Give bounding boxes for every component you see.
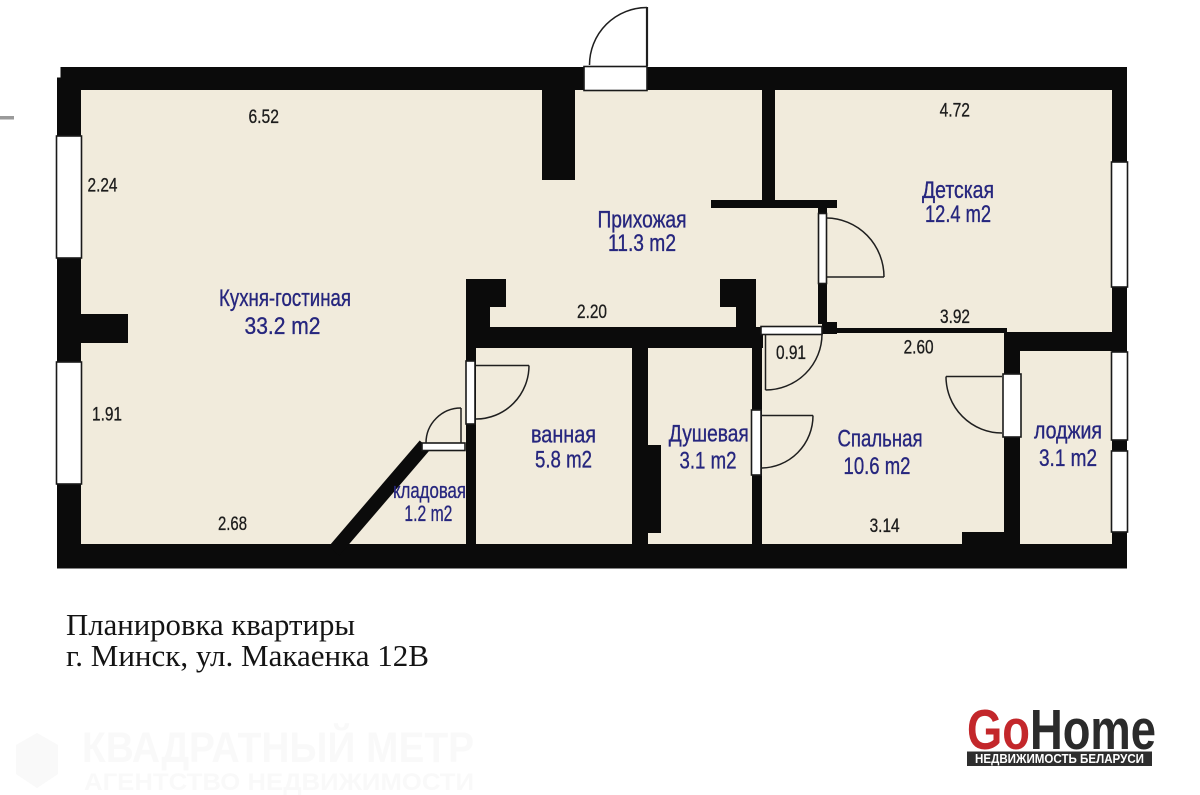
svg-text:НЕДВИЖИМОСТЬ БЕЛАРУСИ: НЕДВИЖИМОСТЬ БЕЛАРУСИ — [975, 752, 1144, 766]
svg-text:Кухня-гостиная: Кухня-гостиная — [219, 285, 351, 312]
svg-text:ванная: ванная — [531, 422, 596, 449]
svg-text:1.91: 1.91 — [92, 405, 122, 426]
svg-text:г. Минск, ул. Макаенка 12В: г. Минск, ул. Макаенка 12В — [66, 638, 429, 673]
svg-text:5.8 m2: 5.8 m2 — [535, 447, 592, 474]
svg-text:33.2 m2: 33.2 m2 — [245, 313, 321, 340]
svg-text:10.6 m2: 10.6 m2 — [844, 453, 911, 480]
svg-text:3.92: 3.92 — [940, 307, 970, 328]
svg-text:Детская: Детская — [922, 177, 994, 204]
svg-text:3.1 m2: 3.1 m2 — [1039, 445, 1097, 472]
svg-text:2.20: 2.20 — [577, 302, 607, 323]
svg-text:Планировка квартиры: Планировка квартиры — [66, 607, 355, 642]
svg-text:АГЕНТСТВО НЕДВИЖИМОСТИ: АГЕНТСТВО НЕДВИЖИМОСТИ — [84, 769, 474, 795]
svg-text:2.24: 2.24 — [88, 176, 118, 197]
svg-text:Душевая: Душевая — [669, 421, 749, 448]
svg-text:0.91: 0.91 — [776, 343, 806, 364]
svg-text:2.68: 2.68 — [218, 514, 247, 535]
svg-text:2.60: 2.60 — [904, 338, 934, 359]
svg-text:11.3 m2: 11.3 m2 — [608, 230, 676, 257]
svg-text:6.52: 6.52 — [248, 107, 279, 128]
svg-text:КВАДРАТНЫЙ МЕТР: КВАДРАТНЫЙ МЕТР — [82, 723, 474, 772]
svg-text:лоджия: лоджия — [1034, 418, 1102, 445]
svg-text:кладовая: кладовая — [393, 478, 466, 503]
svg-text:1.2 m2: 1.2 m2 — [404, 501, 452, 526]
svg-text:12.4 m2: 12.4 m2 — [925, 201, 991, 228]
svg-text:3.14: 3.14 — [870, 516, 900, 537]
svg-text:3.1 m2: 3.1 m2 — [680, 447, 737, 474]
svg-text:4.72: 4.72 — [940, 101, 970, 122]
svg-text:Спальная: Спальная — [838, 426, 923, 453]
